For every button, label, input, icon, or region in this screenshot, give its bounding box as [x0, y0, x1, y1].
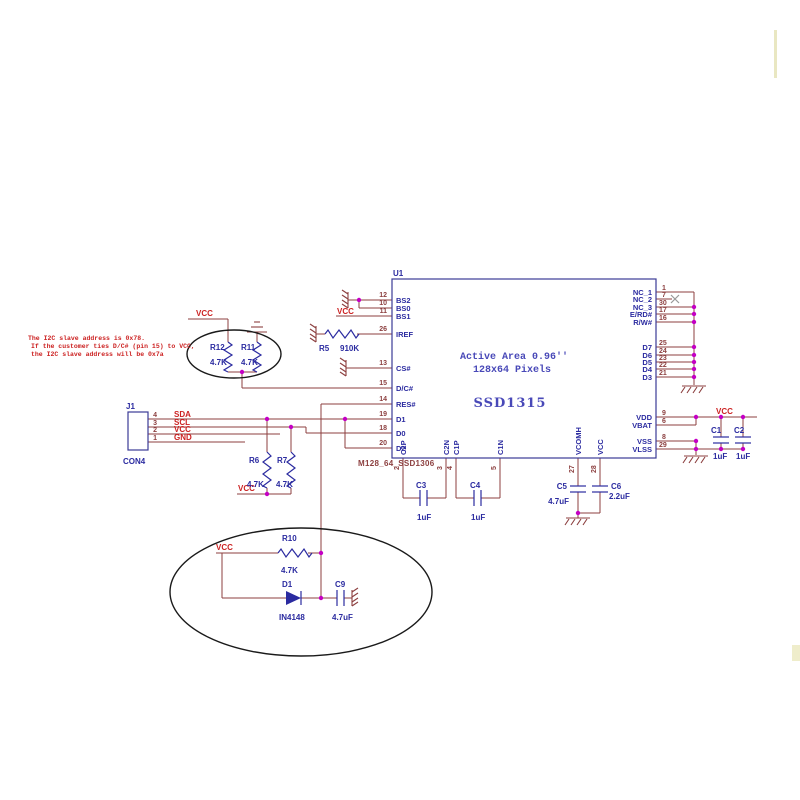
- pin-number: 20: [379, 440, 387, 447]
- ref-r5: R5: [319, 344, 330, 353]
- net-label-vcc: VCC: [716, 407, 733, 416]
- pin-number: 9: [662, 410, 666, 417]
- pin-name: C1P: [452, 440, 461, 455]
- ground-icon-c9: [352, 588, 358, 606]
- connector-refdes: J1: [126, 402, 135, 411]
- resistor-r6: [263, 452, 271, 488]
- pin-name: D3: [642, 373, 652, 382]
- pin-number: 16: [659, 315, 667, 322]
- pin-name: IREF: [396, 330, 414, 339]
- value-c4: 1uF: [471, 513, 485, 522]
- pin-name: C2P: [399, 440, 408, 455]
- ref-c5: C5: [557, 482, 568, 491]
- value-c1: 1uF: [713, 452, 727, 461]
- pin-name: VLSS: [632, 445, 652, 454]
- value-r6: 4.7K: [247, 480, 264, 489]
- value-r5: 910K: [340, 344, 359, 353]
- scan-artifact: [774, 30, 777, 78]
- ref-c4: C4: [470, 481, 481, 490]
- ground-icon-bs: [342, 290, 348, 308]
- resistor-r5: [325, 330, 359, 338]
- i2c-note-line1: The I2C slave address is 0x78.: [28, 335, 145, 342]
- pin-number: 17: [659, 307, 667, 314]
- ref-r7: R7: [277, 456, 288, 465]
- pin-name: RES#: [396, 400, 416, 409]
- schematic-drawing: The I2C slave address is 0x78. If the cu…: [0, 0, 800, 800]
- pin-name: D0: [396, 429, 406, 438]
- capacitor-c1: [713, 437, 729, 443]
- ref-r11: R11: [241, 343, 256, 352]
- pin-number: 2: [153, 427, 157, 434]
- value-c6: 2.2uF: [609, 492, 630, 501]
- pin-name: VBAT: [632, 421, 652, 430]
- pin-number: 13: [379, 360, 387, 367]
- pin-number: 3: [153, 420, 157, 427]
- capacitor-c9: [337, 590, 344, 606]
- connector-body: [128, 412, 148, 450]
- pin-number: 25: [659, 340, 667, 347]
- connector-part: CON4: [123, 457, 146, 466]
- value-c3: 1uF: [417, 513, 431, 522]
- value-c2: 1uF: [736, 452, 750, 461]
- pin-name: R/W#: [633, 318, 653, 327]
- pin-name: D/C#: [396, 384, 414, 393]
- pin-number: 3: [437, 466, 444, 470]
- pin-name: VCOMH: [574, 427, 583, 455]
- pin-number: 6: [662, 418, 666, 425]
- pin-number: 22: [659, 362, 667, 369]
- ic-area-line2: 128x64 Pixels: [473, 364, 551, 376]
- pin-number: 26: [379, 326, 387, 333]
- diode-d1-icon: [286, 591, 301, 605]
- value-c9: 4.7uF: [332, 613, 353, 622]
- pin-name: CS#: [396, 364, 411, 373]
- ref-c1: C1: [711, 426, 722, 435]
- ground-icon-right-bus: [681, 386, 706, 393]
- pin-number: 7: [662, 292, 666, 299]
- value-r12: 4.7K: [210, 358, 227, 367]
- no-connect-x-icon: [671, 295, 679, 303]
- capacitor-c2: [735, 437, 751, 443]
- capacitor-c6: [592, 486, 608, 492]
- pin-number: 4: [447, 466, 454, 470]
- pin-number: 5: [491, 466, 498, 470]
- net-label-vcc: VCC: [337, 307, 354, 316]
- value-d1: IN4148: [279, 613, 305, 622]
- ref-r12: R12: [210, 343, 225, 352]
- pin-number: 18: [379, 425, 387, 432]
- highlight-ellipse-address-select: [187, 330, 281, 378]
- ref-c3: C3: [416, 481, 427, 490]
- i2c-note-line2: If the customer ties D/C# (pin 15) to VC…: [31, 343, 195, 350]
- pin-name: C1N: [496, 440, 505, 455]
- pin-number: 21: [659, 370, 667, 377]
- value-r7: 4.7K: [276, 480, 293, 489]
- pin-number: 2: [394, 466, 401, 470]
- ground-icon-r5: [310, 324, 316, 342]
- pin-number: 12: [379, 292, 387, 299]
- pin-name: BS1: [396, 312, 411, 321]
- ic-area-line1: Active Area 0.96'': [460, 351, 568, 363]
- pin-name: VCC: [596, 439, 605, 455]
- capacitor-c5: [570, 486, 586, 492]
- capacitor-c3: [420, 490, 427, 506]
- pin-number: 27: [569, 465, 576, 473]
- pin-number: 28: [591, 465, 598, 473]
- pin-number: 24: [659, 348, 667, 355]
- pin-number: 29: [659, 442, 667, 449]
- ic-part-number: SSD1315: [474, 396, 547, 411]
- capacitor-c4: [474, 490, 481, 506]
- schematic-page: The I2C slave address is 0x78. If the cu…: [0, 0, 800, 800]
- ref-c6: C6: [611, 482, 622, 491]
- pin-number: 11: [380, 308, 388, 315]
- pin-number: 10: [379, 300, 387, 307]
- pin-number: 30: [659, 300, 667, 307]
- value-r11: 4.7K: [241, 358, 258, 367]
- pin-name: C2N: [442, 440, 451, 455]
- pin-number: 1: [153, 435, 157, 442]
- scan-artifact: [792, 645, 800, 661]
- pin-name: D1: [396, 415, 406, 424]
- ref-c2: C2: [734, 426, 745, 435]
- ref-r10: R10: [282, 534, 297, 543]
- ground-icon-r11: [247, 322, 267, 332]
- ic-refdes: U1: [393, 269, 404, 278]
- ref-d1: D1: [282, 580, 293, 589]
- pin-number: 4: [153, 412, 157, 419]
- pin-number: 19: [379, 411, 387, 418]
- pin-number: 14: [379, 396, 387, 403]
- pin-number: 1: [662, 285, 666, 292]
- net-label-gnd: GND: [174, 433, 192, 442]
- pin-number: 15: [379, 380, 387, 387]
- pin-number: 23: [659, 355, 667, 362]
- value-c5: 4.7uF: [548, 497, 569, 506]
- net-label-vcc: VCC: [216, 543, 233, 552]
- resistor-r10: [278, 549, 312, 557]
- resistor-r12: [224, 342, 232, 372]
- value-r10: 4.7K: [281, 566, 298, 575]
- ground-icon-cs: [340, 358, 346, 376]
- ground-icon-c5: [565, 518, 590, 525]
- ref-r6: R6: [249, 456, 260, 465]
- net-label-vcc: VCC: [196, 309, 213, 318]
- i2c-note-line3: the I2C slave address will be 0x7a: [31, 351, 164, 358]
- ref-c9: C9: [335, 580, 346, 589]
- pin-number: 8: [662, 434, 666, 441]
- ground-icon-vss: [683, 456, 708, 463]
